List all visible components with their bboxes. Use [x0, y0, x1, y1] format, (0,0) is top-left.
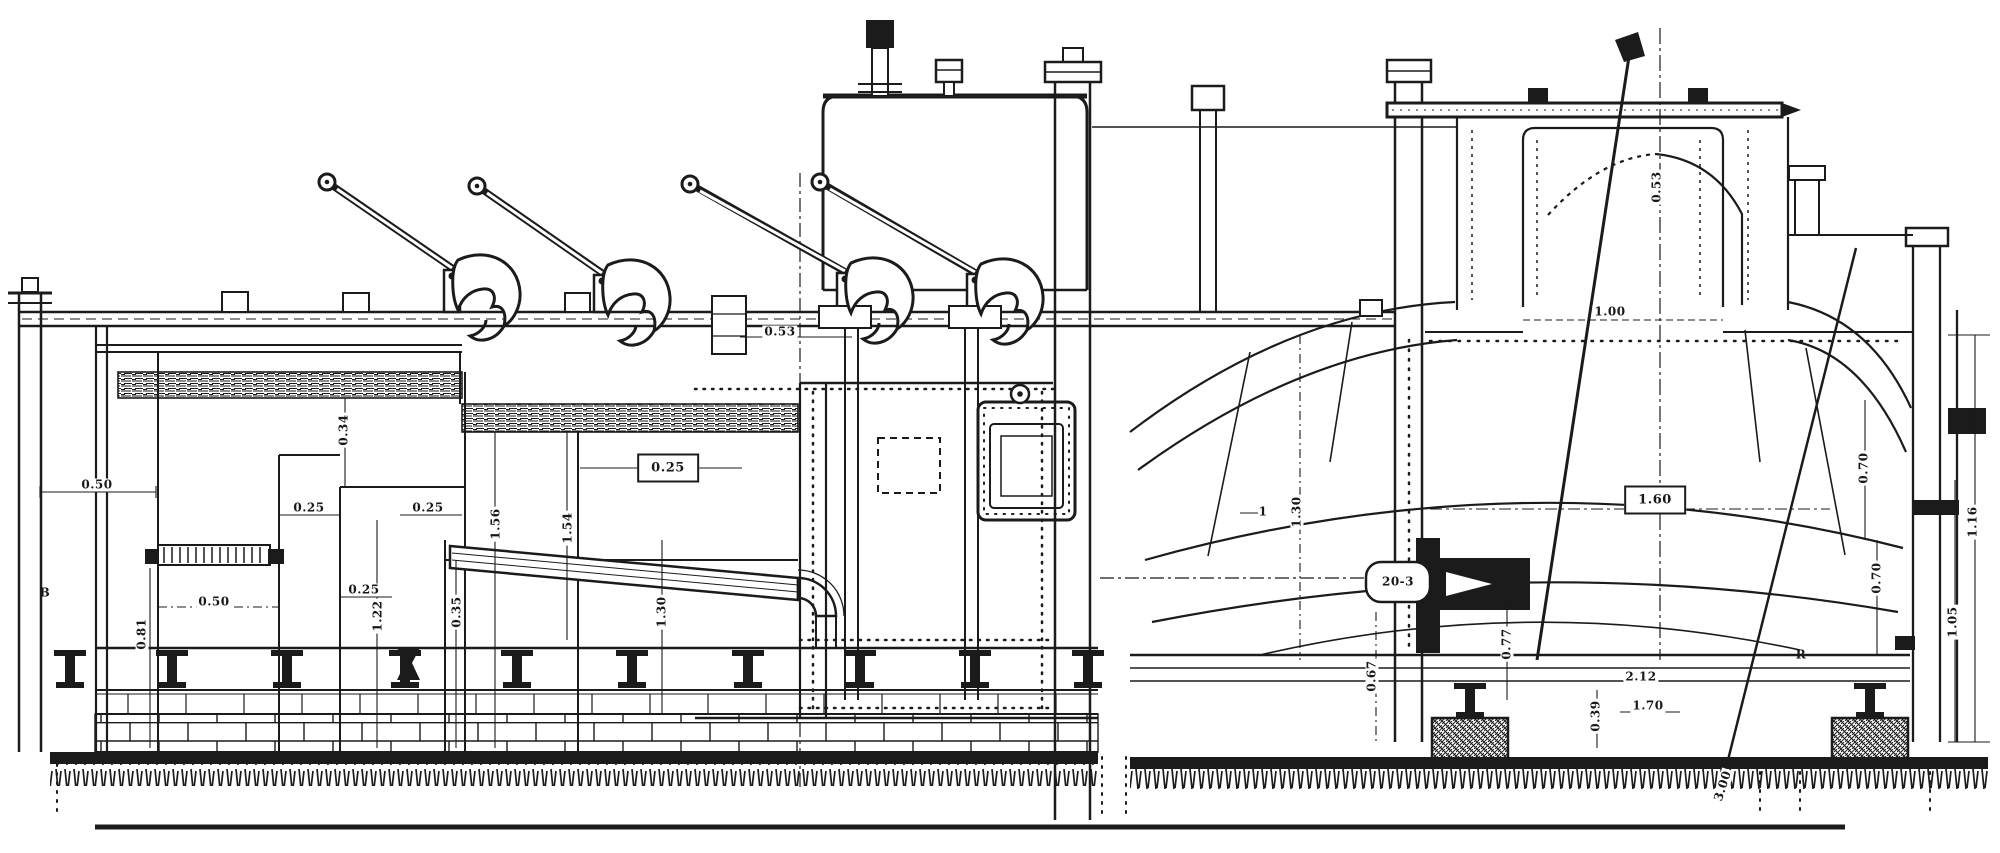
- dimension-label: 1.54: [562, 510, 575, 545]
- overhead-tank: [823, 20, 1087, 290]
- intermediate-post: [1092, 86, 1457, 312]
- dimension-label: 0.67: [1366, 658, 1379, 693]
- dimension-label: 1.30: [1291, 494, 1304, 529]
- dimension-label: 0.50: [196, 596, 231, 609]
- grate-trough: [145, 545, 284, 565]
- ground: [50, 752, 1988, 791]
- dimension-label: 0.50: [79, 479, 114, 492]
- part-letter-label: 1: [1257, 506, 1270, 519]
- left-wall-post: [8, 278, 52, 752]
- dimension-label: 0.70: [1858, 450, 1871, 485]
- dimension-label: 1.16: [1967, 504, 1980, 539]
- technical-drawing: [0, 0, 2000, 853]
- left-masonry-chamber: [95, 327, 798, 752]
- dimension-label: 1.30: [656, 594, 669, 629]
- dimension-label: 1.70: [1630, 700, 1665, 713]
- dimension-label: 0.77: [1501, 626, 1514, 661]
- part-letter-label: B: [38, 587, 53, 600]
- dimension-label: 0.34: [338, 412, 351, 447]
- left-floor-platform: [95, 648, 1098, 752]
- dimension-label: 0.35: [451, 594, 464, 629]
- dimension-label: 1.60: [1624, 486, 1686, 515]
- dimension-label: 0.25: [346, 584, 381, 597]
- dimension-label: 0.81: [136, 616, 149, 651]
- furnace-floor: [1130, 655, 1910, 760]
- pipe-tag-label: 20-3: [1380, 576, 1416, 589]
- dimension-label: 1.05: [1947, 604, 1960, 639]
- dimension-label: 0.53: [762, 326, 797, 339]
- dimension-label: 0.25: [410, 502, 445, 515]
- dimension-label: 0.53: [1651, 169, 1664, 204]
- dimension-label: 0.25: [291, 502, 326, 515]
- part-letter-label: R: [1794, 649, 1808, 662]
- dimension-label: 0.25: [637, 454, 699, 483]
- middle-riveted-chamber: [695, 383, 1098, 718]
- dimension-label: 0.70: [1871, 560, 1884, 595]
- dimension-label: 1.22: [372, 598, 385, 633]
- dimension-label: 0.39: [1590, 698, 1603, 733]
- dimension-label: 1.00: [1592, 306, 1627, 319]
- dimension-label: 2.12: [1623, 671, 1658, 684]
- engraving-page: 0.50 B 0.50 0.81 0.34 0.25 0.25 0.25 1.2…: [0, 0, 2000, 853]
- blast-pipe: [450, 546, 844, 648]
- dimension-label: 1.56: [490, 506, 503, 541]
